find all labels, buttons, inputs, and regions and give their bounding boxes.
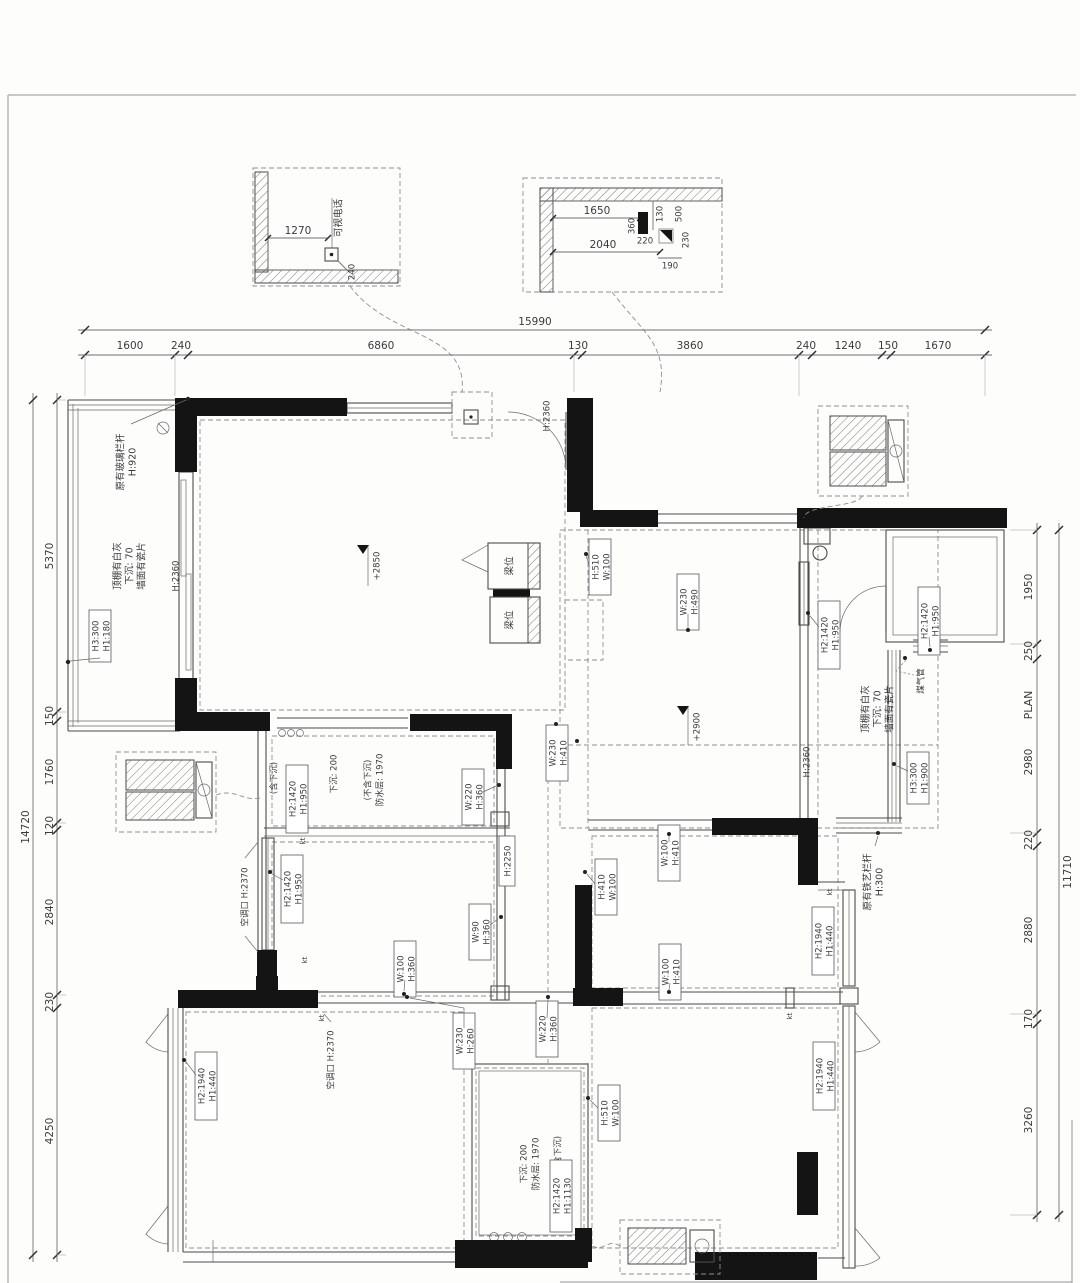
svg-text:H1:440: H1:440 [826, 926, 836, 957]
svg-text:H1:950: H1:950 [300, 784, 310, 815]
svg-text:下沉: 70: 下沉: 70 [873, 690, 884, 727]
ceiling-dim-500: 500 [675, 206, 685, 222]
level-mark-dining: +2900 [677, 706, 703, 745]
svg-text:H2:1940: H2:1940 [815, 923, 825, 959]
svg-text:H3:300: H3:300 [92, 621, 102, 652]
callout-ceiling-detail: 1650 2040 360 130 220 500 230 190 [523, 178, 722, 392]
svg-text:H2:1940: H2:1940 [816, 1058, 826, 1094]
ac-opening-2-label: 空调口 H:2370 [326, 1030, 337, 1089]
svg-text:顶棚有白灰: 顶棚有白灰 [112, 542, 124, 590]
svg-text:下沉: 200: 下沉: 200 [520, 1145, 530, 1184]
svg-text:(不含下沉): (不含下沉) [363, 760, 374, 801]
svg-text:原有铁艺栏杆: 原有铁艺栏杆 [862, 853, 874, 911]
entry-niche [452, 392, 492, 438]
dim-top-4: 3860 [677, 340, 704, 352]
svg-text:H:410: H:410 [673, 959, 683, 984]
plan-label: PLAN [1022, 691, 1035, 720]
svg-text:H1:950: H1:950 [832, 620, 842, 651]
svg-text:H:2360: H:2360 [803, 747, 813, 778]
bath1-sunk-note: 下沉: 200 [330, 755, 340, 794]
svg-text:W:100: W:100 [612, 1100, 622, 1127]
intercom-dim-1270: 1270 [285, 225, 312, 237]
svg-text:H:510: H:510 [601, 1100, 611, 1125]
ceiling-dim-2040: 2040 [590, 239, 617, 251]
beam-hall-label: W:230 H:410 [546, 725, 570, 781]
bed3-beam-label: W:230 H:260 [453, 1013, 477, 1069]
beam-dining-w-label: H:410 W:100 [595, 859, 619, 915]
ceiling-dim-1650: 1650 [584, 205, 611, 217]
svg-text:H:360: H:360 [483, 919, 493, 944]
bed2-beam-e-label: W:90 H:360 [469, 904, 493, 960]
dim-left-0: 5370 [44, 543, 56, 570]
svg-text:H:2360: H:2360 [543, 401, 553, 432]
kitchen-window-w-label: H2:1420 H1:950 [818, 601, 842, 669]
kt-mark-2: kt [301, 956, 309, 963]
dim-right-2: 2980 [1023, 749, 1035, 776]
bath1-top-wall [277, 718, 408, 737]
bed3-west-window [146, 1008, 183, 1252]
bed2-beam-s-label: W:100 H:360 [394, 941, 418, 997]
dim-left-2: 1760 [44, 759, 56, 786]
balcony-ceiling-note: 顶棚有白灰 下沉: 70 墙面有瓷片 [112, 542, 148, 590]
svg-text:防水层: 1970: 防水层: 1970 [531, 1138, 542, 1191]
svg-text:H:360: H:360 [476, 784, 486, 809]
svg-text:防水层: 1970: 防水层: 1970 [375, 754, 386, 807]
dim-left-1: 150 [44, 706, 56, 726]
svg-text:H3:300: H3:300 [910, 763, 920, 794]
dim-top-5: 240 [796, 340, 816, 352]
ceiling-dim-220: 220 [637, 237, 653, 247]
beam-pos-label-1: 梁位 [504, 556, 516, 576]
svg-text:H2:1940: H2:1940 [198, 1068, 208, 1104]
svg-text:W:230: W:230 [549, 740, 559, 767]
callout-intercom: 1270 可视电话 240 [253, 168, 462, 392]
balcony-slide-door-label: H:2360 [172, 561, 182, 592]
bath1-incl-note: (含下沉) [269, 762, 280, 794]
ceiling-dim-230: 230 [682, 232, 692, 248]
svg-text:H1:180: H1:180 [103, 621, 113, 652]
svg-text:H:510: H:510 [592, 554, 602, 579]
dim-right-4: 2880 [1023, 917, 1035, 944]
bath1-win-beam-label: W:220 H:360 [462, 769, 486, 825]
dim-top-0: 1600 [117, 340, 144, 352]
floor-plan-page: 1270 可视电话 240 1650 2040 360 130 [0, 0, 1080, 1283]
glass-railing-label: 原有玻璃栏杆 H:920 [115, 433, 139, 491]
balcony-window-label: H3:300 H1:180 [89, 610, 113, 662]
dim-chain-right: 1950 250 PLAN 2980 220 2880 170 3260 117… [1010, 523, 1074, 1222]
dim-right-6: 3260 [1023, 1107, 1035, 1134]
dim-top-2: 6860 [368, 340, 395, 352]
svg-text:W:230: W:230 [680, 589, 690, 616]
dim-top-3: 130 [568, 340, 588, 352]
svg-text:H2:1420: H2:1420 [284, 871, 294, 907]
entry-door [508, 412, 566, 470]
intercom-dim-240: 240 [348, 264, 358, 280]
ceiling-dim-130: 130 [656, 206, 666, 222]
ceiling-detail-leader [612, 292, 662, 392]
svg-text:(含下沉): (含下沉) [269, 762, 280, 794]
kitchen-niche-door [840, 586, 886, 632]
bed3-south-wall [183, 1240, 470, 1262]
svg-text:H:360: H:360 [550, 1016, 560, 1041]
svg-text:H2:1420: H2:1420 [289, 781, 299, 817]
beam-bath2-label: H:510 W:100 [598, 1085, 622, 1141]
beam-pos-label-2: 梁位 [504, 610, 516, 630]
bath1-window-label: H2:1420 H1:950 [286, 765, 310, 833]
svg-text:+2850: +2850 [373, 552, 383, 581]
svg-text:+2900: +2900 [693, 713, 703, 742]
ac-opening-1-label: 空调口 H:2370 [240, 867, 251, 926]
dim-top-6: 1240 [835, 340, 862, 352]
svg-text:H:2360: H:2360 [172, 561, 182, 592]
svg-text:空调口 H:2370: 空调口 H:2370 [326, 1030, 337, 1089]
dim-left-6: 4250 [44, 1118, 56, 1145]
bath2-waterproof-note: 下沉: 200 防水层: 1970 [520, 1138, 542, 1191]
dim-top-total: 15990 [518, 316, 551, 328]
svg-text:W:100: W:100 [661, 840, 671, 867]
intercom-leader [350, 286, 462, 392]
kitchen-ceiling-note: 顶棚有白灰 下沉: 70 墙面有瓷片 [860, 685, 896, 733]
dim-right-total: 11710 [1062, 855, 1074, 888]
dim-right-3: 220 [1023, 830, 1035, 850]
dim-right-1: 250 [1023, 641, 1035, 661]
svg-text:H:260: H:260 [467, 1028, 477, 1053]
kt-marks: kt kt kt kt kt [299, 837, 834, 1021]
svg-text:W:220: W:220 [465, 784, 475, 811]
svg-text:W:220: W:220 [539, 1016, 549, 1043]
svg-text:H:410: H:410 [598, 874, 608, 899]
kitchen-niche-room [886, 530, 1004, 652]
svg-text:H2:1420: H2:1420 [553, 1178, 563, 1214]
kitchen-west-wall [799, 528, 809, 828]
svg-text:H:2250: H:2250 [504, 846, 514, 877]
beam-entry-label: H:510 W:100 [589, 539, 613, 595]
ceiling-dim-360: 360 [628, 218, 638, 234]
dining-window-label: H2:1940 H1:440 [812, 907, 836, 975]
svg-text:H1:1130: H1:1130 [564, 1178, 574, 1214]
hall-height-label: H:2250 [499, 836, 515, 886]
svg-text:H1:440: H1:440 [209, 1071, 219, 1102]
svg-text:H1:900: H1:900 [921, 763, 931, 794]
svg-text:H:360: H:360 [408, 956, 418, 981]
kitchen-balcony-railing [836, 650, 902, 833]
dim-top-1: 240 [171, 340, 191, 352]
svg-text:H:410: H:410 [672, 840, 682, 865]
svg-text:W:100: W:100 [397, 956, 407, 983]
svg-text:煤气管: 煤气管 [916, 668, 927, 694]
svg-text:W:230: W:230 [456, 1028, 466, 1055]
svg-text:H2:1420: H2:1420 [821, 617, 831, 653]
dim-chain-top: 15990 1600 240 6860 130 3860 240 1240 15… [78, 316, 992, 396]
svg-text:H1:950: H1:950 [932, 606, 942, 637]
bath2-window-label: H2:1420 H1:1130 [550, 1160, 574, 1232]
kt-mark-3: kt [318, 1014, 326, 1021]
svg-text:H:920: H:920 [128, 448, 139, 476]
bed4-window-label: H2:1940 H1:440 [813, 1042, 837, 1110]
entry-door-label: H:2360 [543, 401, 553, 432]
beam-dining-top-label: W:230 H:490 [677, 574, 701, 630]
appliance-callout-top-right [804, 406, 908, 518]
svg-text:W:90: W:90 [472, 921, 482, 943]
dim-right-5: 170 [1023, 1009, 1035, 1029]
appliance-callout-left [116, 752, 260, 832]
dim-left-total: 14720 [20, 810, 32, 843]
level-mark-living: +2850 [357, 545, 383, 586]
svg-text:H2:1420: H2:1420 [921, 603, 931, 639]
floor-plan-canvas: 1270 可视电话 240 1650 2040 360 130 [0, 0, 1080, 1283]
dim-left-5: 230 [44, 992, 56, 1012]
bed3-window-label: H2:1940 H1:440 [195, 1052, 219, 1120]
svg-text:下沉: 70: 下沉: 70 [125, 547, 136, 584]
dim-left-4: 2840 [44, 899, 56, 926]
bed2-window-label: H2:1420 H1:950 [281, 855, 305, 923]
svg-text:H1:950: H1:950 [295, 874, 305, 905]
svg-text:H:300: H:300 [875, 868, 886, 896]
bed4-north-beam [623, 988, 843, 1008]
iron-railing-label: 原有铁艺栏杆 H:300 [862, 853, 886, 911]
kt-mark-4: kt [786, 1012, 794, 1019]
svg-text:墙面有瓷片: 墙面有瓷片 [884, 685, 896, 733]
dim-left-3: 120 [44, 816, 56, 836]
svg-text:原有玻璃栏杆: 原有玻璃栏杆 [115, 433, 127, 491]
intercom-label: 可视电话 [333, 199, 345, 238]
dim-chain-left: 14720 5370 150 1760 120 2840 230 4250 [20, 393, 66, 1262]
dim-top-7: 150 [878, 340, 898, 352]
dim-right-0: 1950 [1023, 574, 1035, 601]
svg-text:空调口 H:2370: 空调口 H:2370 [240, 867, 251, 926]
svg-text:W:100: W:100 [662, 959, 672, 986]
dim-top-8: 1670 [925, 340, 952, 352]
gas-pipe-label: 煤气管 [916, 668, 927, 694]
svg-text:W:100: W:100 [609, 874, 619, 901]
svg-text:H:490: H:490 [691, 589, 701, 614]
kitchen-slide-door-label: H:2360 [803, 747, 813, 778]
ceiling-dim-190: 190 [662, 262, 678, 272]
kt-mark-1: kt [299, 837, 307, 844]
bath1-waterproof-note: (不含下沉) 防水层: 1970 [363, 754, 386, 807]
svg-text:墙面有瓷片: 墙面有瓷片 [136, 542, 148, 590]
kt-mark-5: kt [826, 888, 834, 895]
svg-text:H:410: H:410 [560, 740, 570, 765]
svg-text:W:100: W:100 [603, 554, 613, 581]
kitchen-balc-window-label: H3:300 H1:900 [907, 752, 931, 804]
svg-text:顶棚有白灰: 顶棚有白灰 [860, 685, 872, 733]
svg-text:下沉: 200: 下沉: 200 [330, 755, 340, 794]
svg-text:H1:440: H1:440 [827, 1061, 837, 1092]
